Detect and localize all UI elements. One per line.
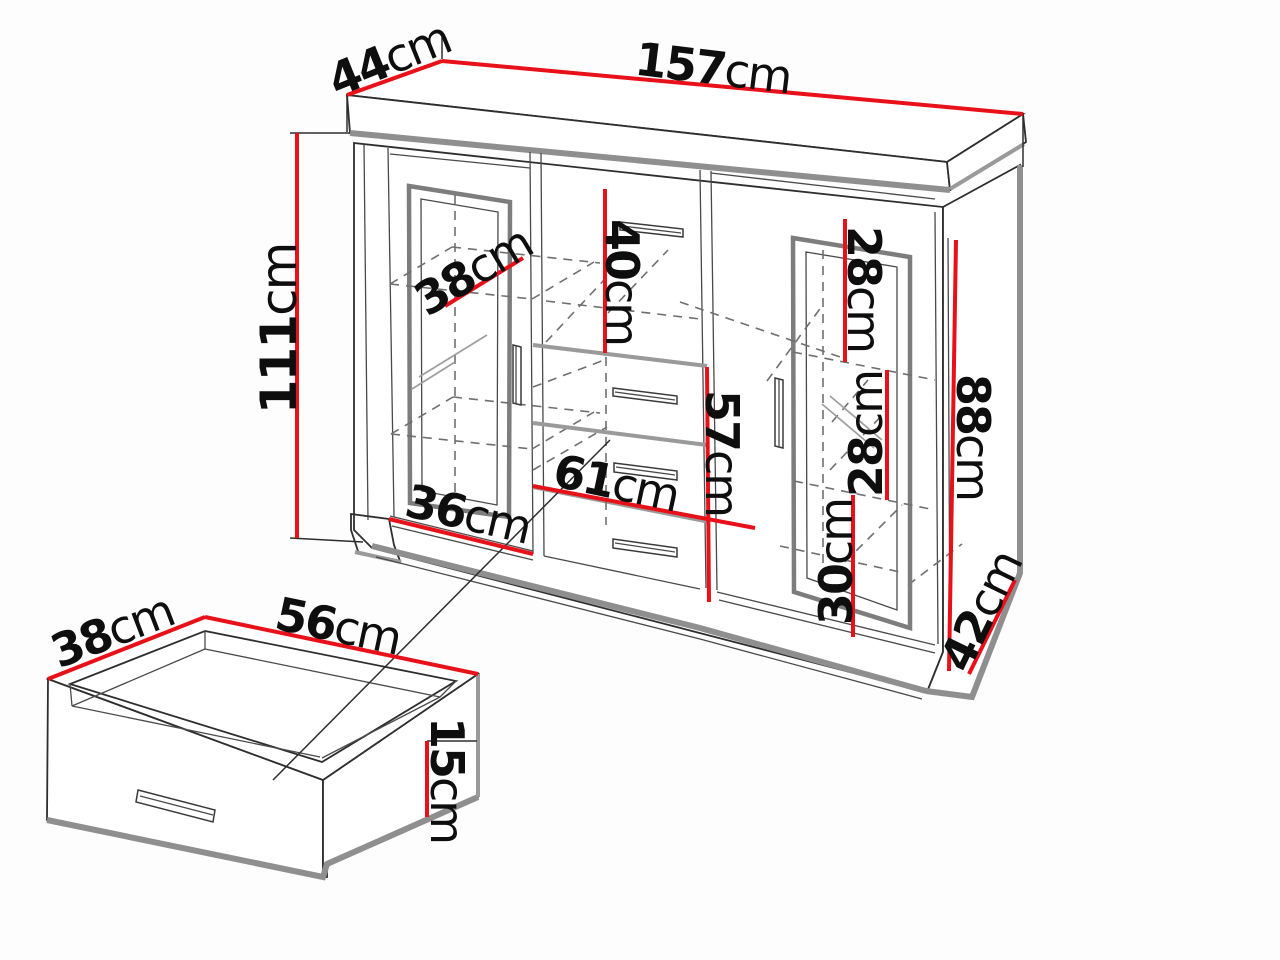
dimension-label-right-top-shelf: 28cm (841, 226, 887, 352)
dimension-label-drawer-stack-height: 57cm (699, 390, 745, 516)
dimension-label-height: 111cm (254, 244, 304, 415)
dimension-label-drawer-front-height: 15cm (424, 717, 470, 843)
dimension-label-right-side-height: 88cm (950, 374, 996, 500)
diagram-canvas: 157cm 44cm 111cm 38cm 40cm 28cm 88cm 28c… (0, 0, 1280, 960)
dimension-label-right-middle-shelf: 28cm (843, 371, 889, 497)
dimension-label-top-drawer-height: 40cm (599, 219, 645, 345)
left-door-handle (513, 345, 521, 405)
dimension-label-right-bottom-shelf: 30cm (813, 499, 859, 625)
